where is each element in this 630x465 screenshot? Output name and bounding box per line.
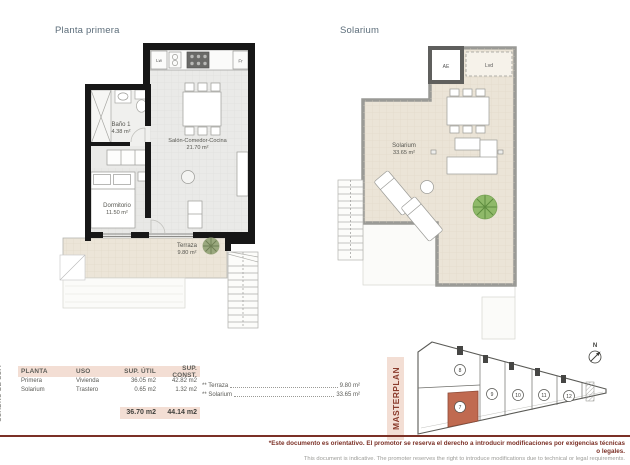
- plant-icon: [473, 195, 497, 219]
- divider-rule: [0, 435, 630, 437]
- col-header-const: SUP. CONST.: [156, 365, 200, 379]
- col-header-uso: USO: [76, 368, 120, 375]
- floorplan-solarium: AE Lvd: [330, 35, 530, 345]
- stairs-icon: [228, 252, 258, 328]
- north-label: N: [593, 343, 597, 349]
- label-dishwasher: Lw: [156, 58, 163, 63]
- dotted-leader: [230, 387, 337, 388]
- kitchen-counter: [150, 50, 248, 70]
- dotted-leader: [234, 396, 334, 397]
- masterplan-map: 8 7 9 10 11 12 N: [405, 338, 623, 436]
- label-lvd: Lvd: [485, 63, 493, 69]
- extra-terraza: ** Terraza 9.80 m²: [202, 381, 360, 389]
- col-header-util: SUP. ÚTIL: [120, 368, 156, 375]
- sofa: [188, 201, 202, 228]
- wall-light: [498, 150, 503, 154]
- sideboard: [237, 152, 248, 196]
- room-label-solarium: Solarium 33.65 m²: [379, 143, 429, 157]
- round-table: [421, 181, 434, 194]
- col-header-planta: PLANTA: [18, 368, 76, 375]
- unit-number-10: 10: [515, 393, 521, 399]
- stairs-icon: [338, 180, 363, 260]
- surface-table: PLANTA USO SUP. ÚTIL SUP. CONST. Primera…: [18, 366, 200, 419]
- room-label-bano: Baño 1 4.38 m²: [95, 122, 147, 136]
- dining-set: [183, 83, 221, 135]
- site-outline: [418, 342, 606, 434]
- room-label-dormitorio: Dormitorio 11.50 m²: [92, 203, 142, 217]
- unit-number-12: 12: [566, 394, 572, 400]
- wall-light: [431, 150, 436, 154]
- total-util: 36.70 m2: [120, 407, 156, 419]
- room-label-salon: Salón-Comedor-Cocina 21.70 m²: [160, 138, 235, 151]
- table-header-row: PLANTA USO SUP. ÚTIL SUP. CONST.: [18, 366, 200, 377]
- label-fridge: Fr: [238, 59, 243, 64]
- total-const: 44.14 m2: [156, 407, 200, 419]
- extra-solarium: ** Solarium 33.65 m²: [202, 390, 360, 398]
- table-row: Solarium Trastero 0.65 m2 1.32 m2: [18, 386, 200, 395]
- plan-left-title: Planta primera: [55, 25, 120, 36]
- label-ae: AE: [443, 64, 450, 70]
- extra-surfaces: ** Terraza 9.80 m² ** Solarium 33.65 m²: [202, 381, 360, 399]
- table-row: Primera Vivienda 36.05 m2 42.82 m2: [18, 377, 200, 386]
- masterplan-label: MASTERPLAN: [387, 357, 404, 440]
- disclaimer: *Este documento es orientativo. El promo…: [265, 440, 625, 463]
- unit-number-7: 7: [459, 405, 462, 411]
- table-totals-row: 36.70 m2 44.14 m2: [18, 407, 200, 419]
- floorplan-planta-primera: Lw Fr: [45, 40, 265, 340]
- wardrobe: [107, 150, 150, 165]
- unit-number-9: 9: [491, 392, 494, 398]
- solarium-dining-set: [447, 89, 489, 133]
- unit-number-11: 11: [541, 393, 546, 399]
- hatched-strip: [586, 382, 594, 401]
- room-label-terraza: Terraza 9.80 m²: [162, 243, 212, 257]
- side-table: [182, 171, 195, 184]
- disclaimer-es: *Este documento es orientativo. El promo…: [265, 440, 625, 456]
- unit-number-8: 8: [459, 368, 462, 374]
- north-arrow-icon: N: [589, 343, 601, 363]
- disclaimer-en: This document is indicative. The promote…: [265, 456, 625, 463]
- cuadro-side-label: CUADRO DE SUP.: [0, 350, 8, 436]
